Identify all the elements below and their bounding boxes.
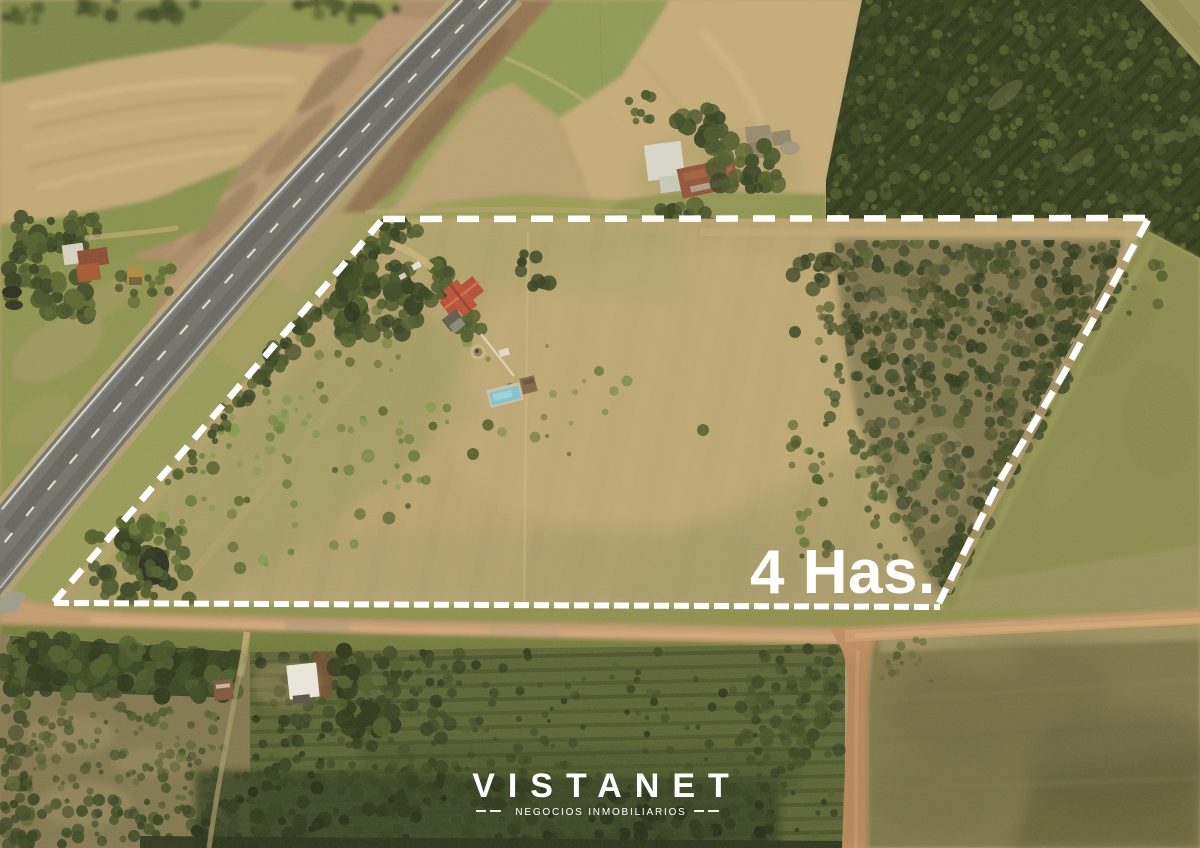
svg-text:VISTANET: VISTANET [472,767,742,805]
svg-text:NEGOCIOS INMOBILIARIOS: NEGOCIOS INMOBILIARIOS [515,807,686,818]
svg-text:4 Has.: 4 Has. [750,538,936,607]
